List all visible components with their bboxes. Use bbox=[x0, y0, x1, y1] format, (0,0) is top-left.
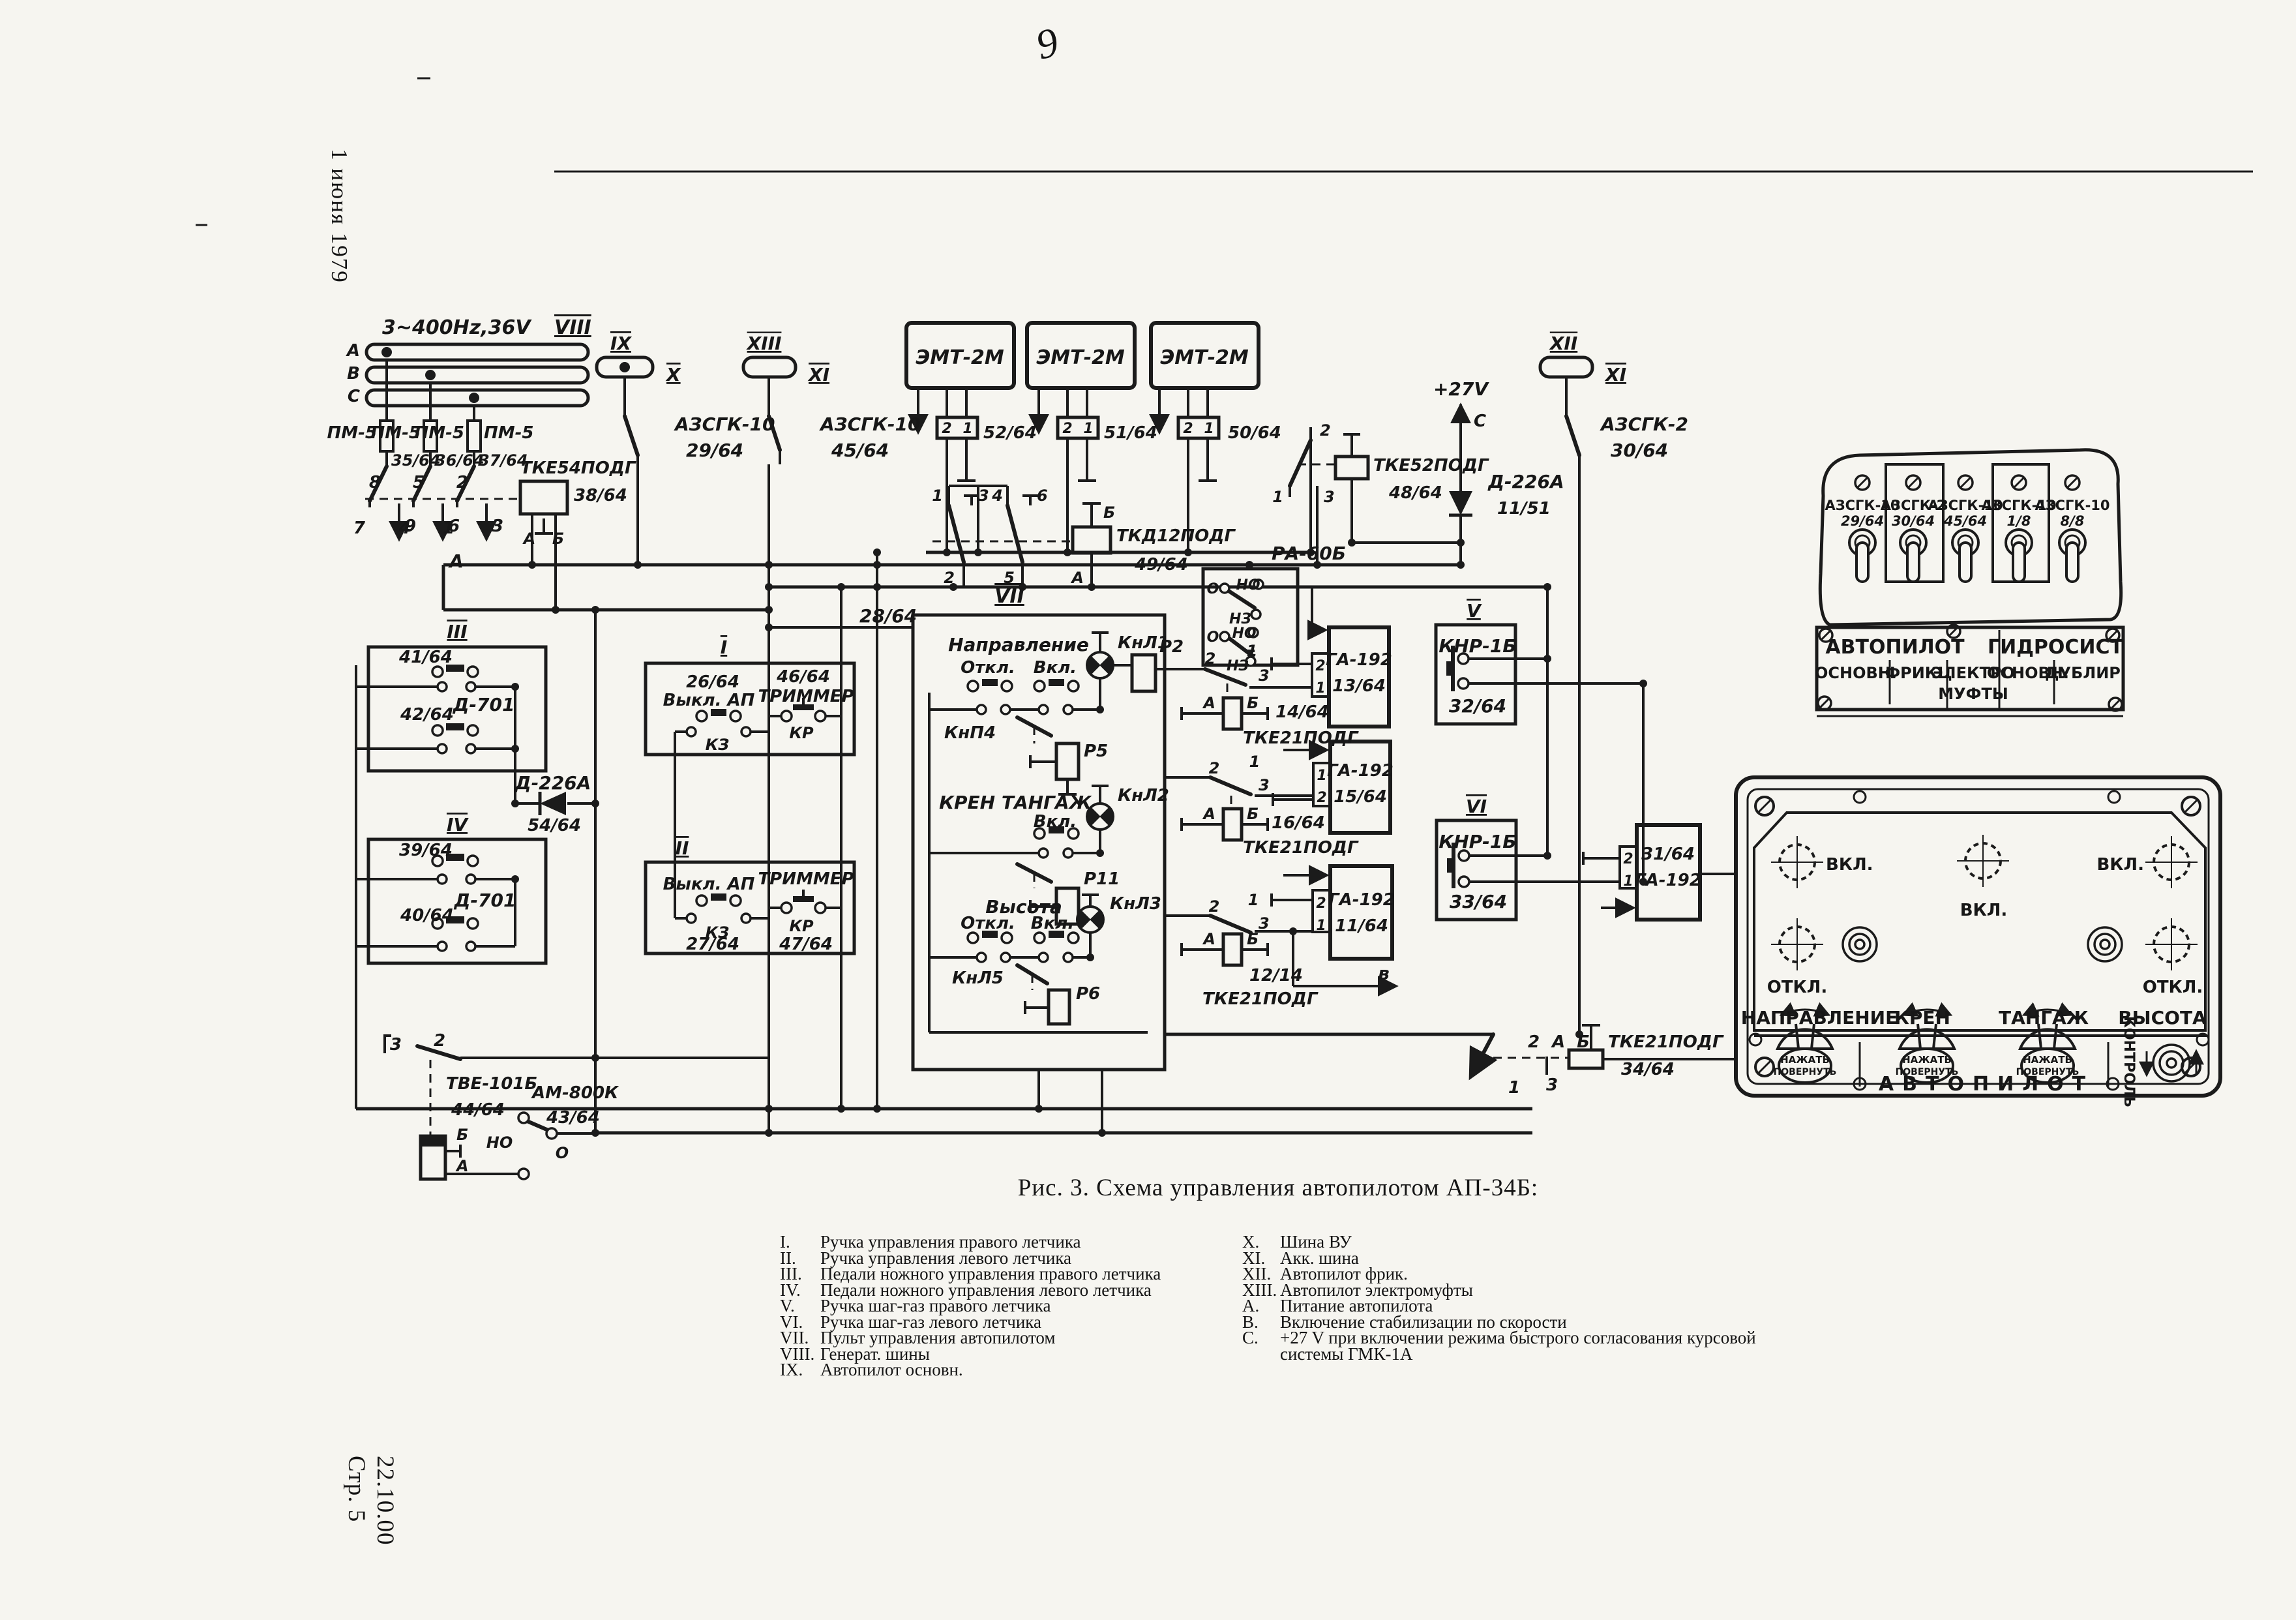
autopilot-panel-labels: ВКЛ. ОТКЛ. ВКЛ. ВКЛ. ОТКЛ. НАПРАВЛЕНИЕ К… bbox=[1741, 855, 2207, 1107]
bp-group1: АВТОПИЛОТ bbox=[1825, 636, 1965, 659]
tkd-c1: 1 bbox=[932, 487, 943, 505]
tkd-c6: 6 bbox=[1037, 487, 1048, 505]
ap-on-3: ВКЛ. bbox=[2096, 855, 2144, 875]
ga4-tt: 2 bbox=[1623, 851, 1633, 867]
bV-name: КНР-1Б bbox=[1439, 635, 1516, 657]
tke34-name: ТКЕ21ПОДГ bbox=[1608, 1032, 1724, 1052]
b7-r3: Р6 bbox=[1076, 984, 1100, 1004]
screw-icon bbox=[1750, 791, 2209, 1090]
brk-45-name: АЗСГК-10 bbox=[819, 413, 920, 435]
fuse-label-2: ПМ-5 bbox=[370, 423, 421, 443]
b2-num: II bbox=[676, 837, 689, 859]
bp-col6: ДУБЛИР bbox=[2045, 664, 2121, 682]
ga1-tt: 2 bbox=[1315, 658, 1325, 674]
co2-a: А bbox=[1202, 805, 1215, 823]
b7-l2: КнЛ2 bbox=[1118, 786, 1169, 805]
tke34-wire: 34/64 bbox=[1621, 1060, 1675, 1079]
scan-artifacts bbox=[196, 78, 2253, 225]
legend-item: XII.Автопилот фрик. bbox=[1242, 1266, 1816, 1282]
ap-on-2: ВКЛ. bbox=[1960, 901, 2008, 920]
bp-s2-wire: 30/64 bbox=[1892, 513, 1935, 529]
relay-tke54-name: ТКЕ54ПОДГ bbox=[520, 458, 636, 478]
bV-wire: 32/64 bbox=[1449, 695, 1506, 717]
am-name: АМ-800К bbox=[531, 1083, 619, 1103]
b3-num: III bbox=[447, 621, 467, 642]
tke34-tb: Б bbox=[1577, 1032, 1590, 1052]
margin-doc-code: 22.10.00 Стр. 5 bbox=[342, 1456, 399, 1546]
brk-30-name: АЗСГК-2 bbox=[1600, 413, 1688, 435]
emt2-t2: 2 bbox=[1062, 421, 1072, 437]
tke52-c3: 3 bbox=[1324, 488, 1335, 506]
block-boxes bbox=[368, 615, 1165, 1070]
b4-w1: 39/64 bbox=[399, 841, 453, 860]
ra60-name: РА-60Б bbox=[1272, 543, 1346, 564]
tkd-c3: 3 bbox=[978, 487, 989, 505]
relay-tke54-a: А bbox=[522, 530, 536, 548]
emt-2: ЭМТ-2М bbox=[1036, 346, 1125, 369]
phase-a: А bbox=[346, 341, 360, 361]
emt3-t2: 2 bbox=[1183, 421, 1193, 437]
legend-item: III.Педали ножного управления правого ле… bbox=[780, 1266, 1236, 1282]
co1-wire: 14/64 bbox=[1275, 702, 1329, 722]
co2-name: ТКЕ21ПОДГ bbox=[1243, 838, 1359, 858]
b7-btn1: КнП4 bbox=[944, 723, 996, 743]
tve-c2: 2 bbox=[434, 1031, 445, 1051]
b7-on1: Вкл. bbox=[1034, 658, 1077, 678]
bp-group2: ГИДРОСИСТ bbox=[1988, 636, 2124, 659]
contact-5: 5 bbox=[413, 473, 425, 492]
bus-xiii: XIII bbox=[746, 333, 782, 354]
b7-on2: Вкл. bbox=[1034, 812, 1077, 832]
phase-b: В bbox=[347, 364, 360, 383]
bus-xii: XII bbox=[1549, 333, 1577, 354]
ga2-tb: 2 bbox=[1317, 790, 1326, 806]
tkd-ta: А bbox=[1070, 569, 1084, 587]
tve-name: ТВЕ-101Б bbox=[446, 1074, 537, 1094]
legend-item: IX.Автопилот основн. bbox=[780, 1362, 1236, 1378]
b1-kr: КР bbox=[789, 724, 814, 742]
b2-kr: КР bbox=[789, 917, 814, 935]
ap-knob3-l1: НАЖАТЬ bbox=[2023, 1054, 2072, 1066]
legend-item: I.Ручка управления правого летчика bbox=[780, 1234, 1236, 1250]
tke52-c1: 1 bbox=[1272, 488, 1283, 506]
tkd-name: ТКД12ПОДГ bbox=[1116, 526, 1236, 546]
bp-s1-wire: 29/64 bbox=[1841, 513, 1884, 529]
contact-8: 8 bbox=[369, 473, 381, 492]
autopilot-panel bbox=[1736, 777, 2220, 1096]
brk-29-wire: 29/64 bbox=[686, 440, 743, 461]
ga3-s2: 2 bbox=[1209, 897, 1220, 916]
legend-left-column: I.Ручка управления правого летчика II.Ру… bbox=[780, 1234, 1236, 1378]
b7-r1: Р2 bbox=[1159, 637, 1184, 657]
contact-2: 2 bbox=[456, 473, 468, 492]
tve-tb: Б bbox=[456, 1126, 468, 1144]
ga2-s1: 1 bbox=[1249, 753, 1260, 771]
bV-num: V bbox=[1467, 600, 1482, 622]
diode-11-name: Д-226А bbox=[1487, 471, 1564, 492]
margin-date-note: 1 июня 1979 bbox=[326, 149, 352, 284]
tke34-c3: 3 bbox=[1546, 1075, 1558, 1095]
ap-off-1: ОТКЛ. bbox=[1767, 978, 1828, 997]
ap-ch1: НАПРАВЛЕНИЕ bbox=[1741, 1007, 1898, 1028]
ga3-wire: 11/64 bbox=[1335, 916, 1388, 936]
ga1-name: ГА-192 bbox=[1326, 650, 1392, 670]
ap-knob1-l1: НАЖАТЬ bbox=[1780, 1054, 1830, 1066]
contact-1: 1 bbox=[443, 518, 455, 538]
legend-item: A.Питание автопилота bbox=[1242, 1298, 1816, 1314]
b4-w2: 40/64 bbox=[400, 906, 454, 925]
am-no: НО bbox=[486, 1133, 513, 1152]
legend-num: I. bbox=[780, 1234, 820, 1250]
legend-text: Педали ножного управления правого летчик… bbox=[820, 1266, 1236, 1282]
tve-c3: 3 bbox=[390, 1035, 402, 1055]
b1-w2: 46/64 bbox=[776, 667, 830, 687]
contact-7: 7 bbox=[353, 518, 366, 538]
co3-b: Б bbox=[1247, 930, 1259, 948]
ap-ch3: ТАНГАЖ bbox=[1999, 1007, 2089, 1028]
tke52-c2: 2 bbox=[1320, 421, 1331, 440]
legend-text: Автопилот фрик. bbox=[1280, 1266, 1816, 1282]
b7-on3: Вкл. bbox=[1031, 914, 1074, 933]
b3-w2: 42/64 bbox=[400, 705, 454, 725]
co2-wire: 16/64 bbox=[1272, 813, 1325, 833]
tve-wire: 44/64 bbox=[451, 1100, 505, 1120]
b7-wire: 28/64 bbox=[859, 605, 917, 627]
emt-1: ЭМТ-2М bbox=[916, 346, 1004, 369]
marker-a: А bbox=[448, 550, 464, 572]
ga1-s3: 3 bbox=[1259, 667, 1270, 685]
b1-num: I bbox=[721, 637, 727, 658]
legend-right-column: X.Шина ВУ XI.Акк. шина XII.Автопилот фри… bbox=[1242, 1234, 1816, 1362]
d54-wire: 54/64 bbox=[528, 816, 581, 835]
legend-num: X. bbox=[1242, 1234, 1280, 1250]
b7-num: VII bbox=[994, 585, 1024, 608]
b7-r1b: Р5 bbox=[1084, 742, 1108, 761]
emt1-t2: 2 bbox=[942, 421, 951, 437]
ga2-name: ГА-192 bbox=[1327, 761, 1394, 781]
ga3-marker: в bbox=[1378, 963, 1390, 984]
breaker-panel-labels: АЗСГК-10 29/64 АЗСГК-2 30/64 АЗСГК-10 45… bbox=[1815, 498, 2124, 703]
tke52-name: ТКЕ52ПОДГ bbox=[1373, 456, 1489, 475]
b3-dev: Д-701 bbox=[452, 694, 514, 715]
fuse-label-4: ПМ-5 bbox=[484, 423, 534, 443]
figure-caption: Рис. 3. Схема управления автопилотом АП-… bbox=[978, 1174, 1578, 1202]
legend-text: +27 V при включении режима быстрого согл… bbox=[1280, 1330, 1816, 1362]
tkd-tb: Б bbox=[1103, 503, 1115, 522]
b2-w1: 27/64 bbox=[686, 935, 739, 954]
b2-btn: ТРИММЕР bbox=[758, 869, 854, 889]
fuse-wire-2: 36/64 bbox=[435, 451, 485, 470]
ga3-s1: 1 bbox=[1248, 891, 1259, 909]
b7-r2: Р11 bbox=[1084, 869, 1120, 889]
emt2-t1: 1 bbox=[1083, 421, 1093, 437]
b7-t2: КРЕН ТАНГАЖ bbox=[939, 792, 1092, 813]
tkd-c2: 2 bbox=[944, 569, 955, 587]
b1-k: КЗ bbox=[706, 736, 730, 754]
legend-num: IX. bbox=[780, 1362, 820, 1378]
b1-sw: Выкл. АП bbox=[663, 691, 755, 710]
ga1-wire: 13/64 bbox=[1332, 676, 1386, 696]
page-number: Стр. 5 bbox=[342, 1456, 370, 1546]
b2-w2: 47/64 bbox=[779, 935, 833, 954]
legend-num: V. bbox=[780, 1298, 820, 1314]
legend-text: Шина ВУ bbox=[1280, 1234, 1816, 1250]
bp-s5-wire: 8/8 bbox=[2061, 513, 2085, 529]
b7-off1: Откл. bbox=[961, 658, 1015, 678]
tke52-wire: 48/64 bbox=[1388, 483, 1442, 503]
ga3-name: ГА-192 bbox=[1328, 890, 1395, 910]
bus-xiii-side: XI bbox=[807, 364, 829, 385]
legend-num: C. bbox=[1242, 1330, 1280, 1346]
tkd-c4: 4 bbox=[991, 487, 1003, 505]
emt1-t1: 1 bbox=[962, 421, 972, 437]
legend-item: C.+27 V при включении режима быстрого со… bbox=[1242, 1330, 1816, 1362]
bp-s4-wire: 1/8 bbox=[2007, 513, 2031, 529]
b3-w1: 41/64 bbox=[398, 648, 453, 667]
relay-boxes bbox=[520, 457, 1603, 1068]
tkd-c5: 5 bbox=[1004, 569, 1015, 587]
b4-num: IV bbox=[447, 814, 469, 835]
ap-knob1-l2: ПОВЕРНУТЬ bbox=[1774, 1067, 1837, 1077]
phase-c: С bbox=[348, 387, 360, 406]
tke34-ta: А bbox=[1551, 1032, 1565, 1052]
fuse-label-3: ПМ-5 bbox=[414, 423, 464, 443]
ra60-nz2: НЗ bbox=[1227, 658, 1249, 674]
ra60-o1: О bbox=[1207, 581, 1219, 597]
legend-item: V.Ручка шаг-газ правого летчика bbox=[780, 1298, 1236, 1314]
legend-item: X.Шина ВУ bbox=[1242, 1234, 1816, 1250]
tke34-c2: 2 bbox=[1528, 1032, 1540, 1052]
ga4-name: ГА-192 bbox=[1635, 871, 1701, 890]
tke34-c1: 1 bbox=[1508, 1078, 1520, 1098]
legend-text: Автопилот основн. bbox=[820, 1362, 1236, 1378]
legend-num: VII. bbox=[780, 1330, 820, 1346]
contact-3: 3 bbox=[492, 517, 503, 536]
am-o: О bbox=[556, 1144, 569, 1162]
ga4-tb: 1 bbox=[1623, 873, 1633, 890]
legend-text: Ручка шаг-газ правого летчика bbox=[820, 1298, 1236, 1314]
bus-ix: IX bbox=[610, 333, 632, 354]
legend-num: III. bbox=[780, 1266, 820, 1282]
ap-title: АВТОПИЛОТ bbox=[1879, 1073, 2094, 1096]
b7-l3: КнЛ3 bbox=[1110, 894, 1161, 914]
tve-ta: А bbox=[455, 1157, 469, 1175]
co2-b: Б bbox=[1247, 805, 1259, 823]
ga3-tt: 2 bbox=[1316, 895, 1326, 912]
ra60-no1: НО bbox=[1236, 577, 1260, 593]
legend-text: Пульт управления автопилотом bbox=[820, 1330, 1236, 1346]
legend-text: Ручка управления правого летчика bbox=[820, 1234, 1236, 1250]
bus-xii-side: XI bbox=[1604, 364, 1626, 385]
co1-b: Б bbox=[1247, 694, 1259, 712]
plus27v: +27V bbox=[1433, 378, 1489, 400]
b2-sw: Выкл. АП bbox=[663, 875, 755, 894]
ga2-s2: 2 bbox=[1209, 759, 1220, 777]
contact-4: 4 bbox=[398, 518, 411, 538]
bus-ix-side: X bbox=[665, 364, 681, 385]
co3-a: А bbox=[1202, 930, 1215, 948]
fuse-wire-1: 35/64 bbox=[391, 451, 441, 470]
emt-w2: 51/64 bbox=[1104, 423, 1157, 443]
knr-boxes bbox=[1436, 625, 1516, 920]
ra60-o2: О bbox=[1207, 629, 1219, 646]
co3-name: ТКЕ21ПОДГ bbox=[1202, 989, 1319, 1009]
ap-ch2: КРЕН bbox=[1894, 1007, 1950, 1028]
diode-11-wire: 11/51 bbox=[1497, 499, 1551, 518]
ga1-s1: 1 bbox=[1247, 642, 1258, 660]
am-wire: 43/64 bbox=[546, 1108, 600, 1128]
bus-voltage-label: 3~400Hz,36V bbox=[382, 316, 532, 339]
ap-off-3: ОТКЛ. bbox=[2143, 978, 2203, 997]
bVI-wire: 33/64 bbox=[1450, 891, 1507, 912]
relay-tke54-b: Б bbox=[552, 530, 564, 548]
ga1-tb: 1 bbox=[1315, 680, 1325, 697]
b1-w1: 26/64 bbox=[686, 672, 739, 692]
scanned-page: 3~400Hz,36V VIII А В С ПМ-5 ПМ-5 ПМ-5 ПМ… bbox=[0, 0, 2296, 1620]
co1-a: А bbox=[1202, 694, 1215, 712]
tkd-wire: 49/64 bbox=[1134, 555, 1188, 575]
ga3-tb: 1 bbox=[1316, 918, 1326, 934]
bp-s5-label: АЗСГК-10 bbox=[2035, 498, 2110, 513]
legend-text: Питание автопилота bbox=[1280, 1298, 1816, 1314]
bp-s3-wire: 45/64 bbox=[1943, 513, 1987, 529]
d54-name: Д-226А bbox=[514, 772, 591, 794]
ga1-s2: 2 bbox=[1205, 650, 1216, 668]
bp-col4: МУФТЫ bbox=[1938, 685, 2008, 703]
ga2-tt: 1 bbox=[1317, 768, 1326, 784]
ap-control: КОНТРОЛЬ bbox=[2121, 1016, 2137, 1107]
co3-wire: 12/14 bbox=[1249, 966, 1303, 985]
b7-t1: Направление bbox=[948, 634, 1089, 655]
emt-w1: 52/64 bbox=[983, 423, 1037, 443]
ra60-no2: НО bbox=[1232, 625, 1256, 642]
co1-name: ТКЕ21ПОДГ bbox=[1243, 728, 1359, 748]
brk-30-wire: 30/64 bbox=[1611, 440, 1668, 461]
legend-num: A. bbox=[1242, 1298, 1280, 1314]
ga4-wire: 31/64 bbox=[1641, 845, 1695, 864]
ap-on-1: ВКЛ. bbox=[1826, 855, 1873, 875]
ga3-s3: 3 bbox=[1259, 914, 1270, 933]
relay-tke54-wire: 38/64 bbox=[574, 486, 627, 505]
b4-dev: Д-701 bbox=[453, 890, 516, 911]
ap-knob2-l1: НАЖАТЬ bbox=[1902, 1054, 1952, 1066]
emt-w3: 50/64 bbox=[1228, 423, 1281, 443]
fuse-label-1: ПМ-5 bbox=[327, 423, 377, 443]
bus-num-viii: VIII bbox=[554, 316, 591, 339]
marker-c: С bbox=[1474, 412, 1486, 431]
brk-29-name: АЗСГК-10 bbox=[674, 413, 775, 435]
bVI-name: КНР-1Б bbox=[1439, 831, 1516, 852]
doc-code: 22.10.00 bbox=[370, 1456, 399, 1546]
ga2-wire: 15/64 bbox=[1334, 787, 1387, 807]
b7-btn3: КнЛ5 bbox=[952, 968, 1004, 988]
legend-num: XII. bbox=[1242, 1266, 1280, 1282]
emt3-t1: 1 bbox=[1204, 421, 1214, 437]
round-knob bbox=[1843, 927, 2190, 1081]
b7-off3: Откл. bbox=[961, 914, 1015, 933]
legend-item: VII.Пульт управления автопилотом bbox=[780, 1330, 1236, 1346]
ga2-s3: 3 bbox=[1259, 776, 1270, 794]
schematic-labels: 3~400Hz,36V VIII А В С ПМ-5 ПМ-5 ПМ-5 ПМ… bbox=[327, 316, 1723, 1175]
brk-45-wire: 45/64 bbox=[831, 440, 889, 461]
bVI-num: VI bbox=[1466, 796, 1487, 817]
b1-btn: ТРИММЕР bbox=[758, 687, 854, 706]
emt-3: ЭМТ-2М bbox=[1160, 346, 1249, 369]
